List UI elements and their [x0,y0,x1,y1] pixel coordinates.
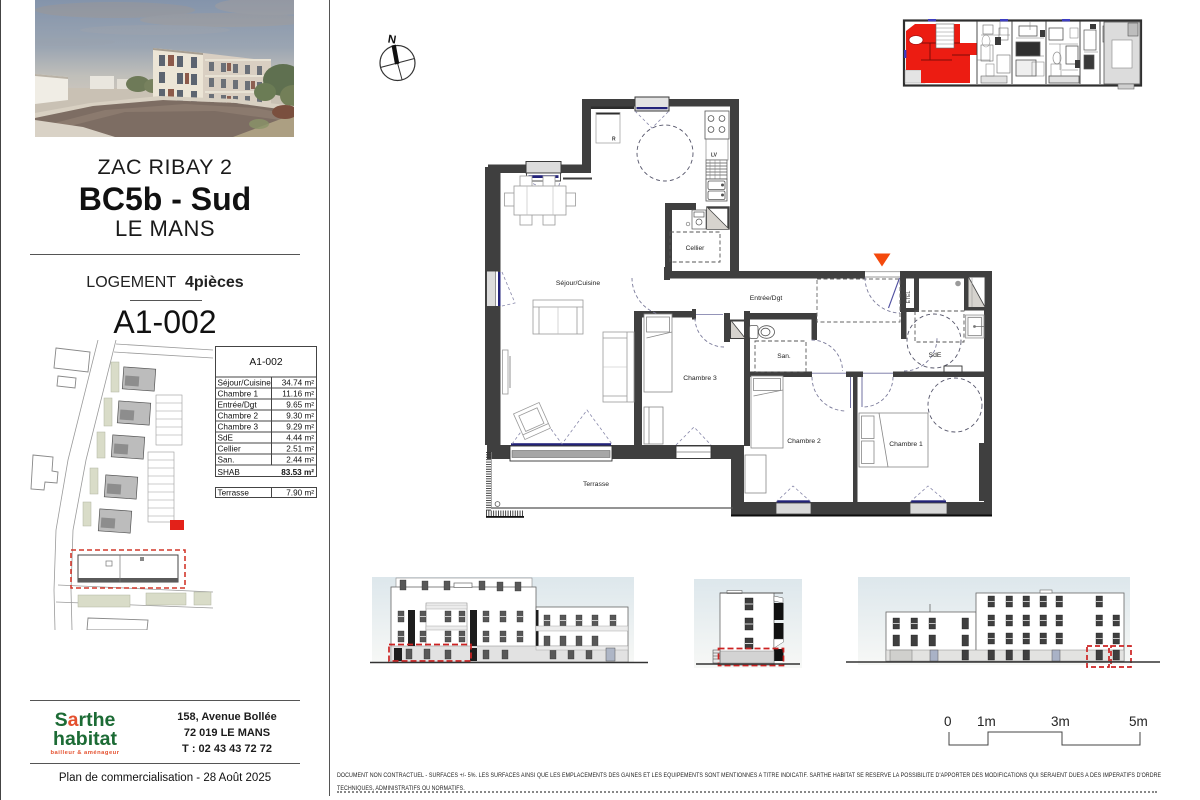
svg-text:Chambre 1: Chambre 1 [889,441,923,448]
svg-text:11.16 m²: 11.16 m² [282,390,314,399]
svg-text:34.74 m²: 34.74 m² [282,379,315,388]
svg-text:2.44 m²: 2.44 m² [286,456,314,465]
svg-text:San.: San. [777,353,791,360]
svg-text:San.: San. [218,456,235,465]
svg-text:0: 0 [944,714,952,729]
svg-text:9.29 m²: 9.29 m² [286,423,314,432]
svg-text:3m: 3m [1051,714,1070,729]
svg-text:Chambre 3: Chambre 3 [683,375,717,382]
svg-text:N: N [387,33,397,46]
svg-text:1m: 1m [977,714,996,729]
svg-text:Terrasse: Terrasse [583,481,609,488]
svg-text:SdE: SdE [929,352,942,359]
svg-text:9.30 m²: 9.30 m² [286,412,314,421]
svg-text:Entrée/Dgt: Entrée/Dgt [218,401,258,410]
svg-text:Chambre 3: Chambre 3 [218,423,259,432]
svg-text:SHAB: SHAB [218,468,241,477]
svg-text:7.90 m²: 7.90 m² [286,489,314,498]
svg-text:LV: LV [711,153,718,159]
svg-text:83.53 m²: 83.53 m² [281,468,314,477]
svg-text:4.44 m²: 4.44 m² [286,434,314,443]
svg-text:A1-002: A1-002 [249,357,282,368]
svg-text:Chambre 1: Chambre 1 [218,390,259,399]
svg-text:Cellier: Cellier [218,445,241,454]
svg-text:Entrée/Dgt: Entrée/Dgt [750,295,783,302]
svg-text:SdE: SdE [218,434,234,443]
svg-text:Chambre 2: Chambre 2 [218,412,259,421]
svg-text:R: R [612,137,616,143]
svg-text:5m: 5m [1129,714,1148,729]
svg-text:Chambre 2: Chambre 2 [787,438,821,445]
svg-text:Séjour/Cuisine: Séjour/Cuisine [218,379,272,388]
svg-text:9.65 m²: 9.65 m² [286,401,314,410]
svg-text:Cellier: Cellier [686,245,705,252]
svg-text:Terrasse: Terrasse [218,489,250,498]
svg-text:ETEL: ETEL [906,291,912,304]
svg-text:Séjour/Cuisine: Séjour/Cuisine [556,280,600,287]
svg-text:2.51 m²: 2.51 m² [286,445,314,454]
